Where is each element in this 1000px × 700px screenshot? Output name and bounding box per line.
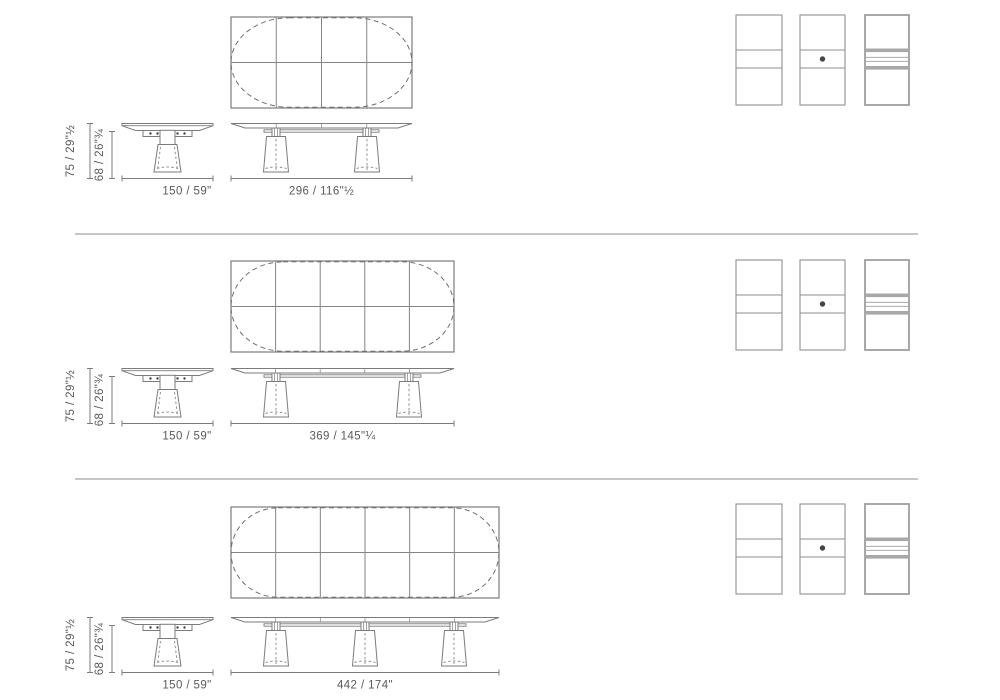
long-width-dimension: 296 / 116"½ <box>231 176 412 198</box>
screw-dot <box>176 626 178 628</box>
long-width-dimension: 369 / 145"¼ <box>231 421 454 443</box>
round-tabletop <box>122 618 213 625</box>
pedestal-neck <box>160 130 175 144</box>
total-height-label: 75 / 29"½ <box>65 125 77 177</box>
lock-dot-icon <box>820 56 825 61</box>
total-height-label: 75 / 29"½ <box>65 619 77 671</box>
long-width-dimension: 442 / 174" <box>231 670 499 692</box>
pedestal-neck <box>160 375 175 389</box>
swatch-top-plain <box>736 260 782 350</box>
dimension-diagram: 150 / 59"296 / 116"½75 / 29"½68 / 26"¾15… <box>0 0 1000 700</box>
screw-dot <box>176 132 178 134</box>
leaf-bar <box>866 555 908 559</box>
underframe-beam <box>264 130 379 132</box>
screw-dot <box>156 626 158 628</box>
long-tabletop <box>231 369 454 374</box>
top-mechanism-swatches <box>736 504 909 594</box>
leaf-bar <box>866 294 908 298</box>
screw-dot <box>176 377 178 379</box>
clearance-height-label: 68 / 26"¾ <box>94 623 106 675</box>
plan-view <box>231 17 412 108</box>
long-width-label: 296 / 116"½ <box>289 186 354 198</box>
leg-connector <box>405 373 413 382</box>
size-variant-table-442: 150 / 59"442 / 174"75 / 29"½68 / 26"¾ <box>65 504 909 692</box>
round-width-label: 150 / 59" <box>162 431 211 443</box>
swatch-top-plain <box>736 504 782 594</box>
total-height-label: 75 / 29"½ <box>65 370 77 422</box>
leaf-bar <box>866 311 908 315</box>
plan-view <box>231 507 499 598</box>
height-dimensions: 75 / 29"½68 / 26"¾ <box>65 124 115 182</box>
long-width-label: 442 / 174" <box>337 680 393 692</box>
top-mechanism-swatches <box>736 15 909 105</box>
round-table-side-view <box>122 369 213 418</box>
product-spec-sheet: 150 / 59"296 / 116"½75 / 29"½68 / 26"¾15… <box>0 0 1000 700</box>
swatch-top-extension-leaves <box>865 504 909 594</box>
leg-connector <box>272 128 280 137</box>
leg-connector <box>363 128 371 137</box>
leaf-bar <box>866 49 908 53</box>
size-variant-table-369: 150 / 59"369 / 145"¼75 / 29"½68 / 26"¾ <box>65 260 909 443</box>
pedestal-neck <box>160 624 175 638</box>
screw-dot <box>156 132 158 134</box>
swatch-top-dot <box>800 260 845 350</box>
round-table-side-view <box>122 124 213 173</box>
underframe-beam <box>264 375 421 377</box>
swatch-top-extension-leaves <box>865 15 909 105</box>
round-width-label: 150 / 59" <box>162 186 211 198</box>
round-tabletop <box>122 369 213 376</box>
long-table-side-view <box>231 618 499 667</box>
swatch-top-dot <box>800 504 845 594</box>
lock-dot-icon <box>820 301 825 306</box>
height-dimensions: 75 / 29"½68 / 26"¾ <box>65 618 115 676</box>
screw-dot <box>183 626 185 628</box>
size-variant-table-296: 150 / 59"296 / 116"½75 / 29"½68 / 26"¾ <box>65 15 909 198</box>
long-width-label: 369 / 145"¼ <box>309 431 375 443</box>
leg-connector <box>272 622 280 631</box>
round-width-dimension: 150 / 59" <box>122 176 213 198</box>
screw-dot <box>183 132 185 134</box>
swatch-top-plain <box>736 15 782 105</box>
leg-connector <box>272 373 280 382</box>
leg-connector <box>361 622 369 631</box>
lock-dot-icon <box>820 545 825 550</box>
long-table-side-view <box>231 369 454 418</box>
swatch-top-dot <box>800 15 845 105</box>
screw-dot <box>149 132 151 134</box>
round-width-dimension: 150 / 59" <box>122 670 213 692</box>
screw-dot <box>149 377 151 379</box>
screw-dot <box>156 377 158 379</box>
leg-connector <box>450 622 458 631</box>
screw-dot <box>183 377 185 379</box>
round-width-dimension: 150 / 59" <box>122 421 213 443</box>
round-tabletop <box>122 124 213 131</box>
leaf-bar <box>866 538 908 542</box>
swatch-top-extension-leaves <box>865 260 909 350</box>
screw-dot <box>149 626 151 628</box>
long-table-side-view <box>231 124 412 173</box>
round-table-side-view <box>122 618 213 667</box>
plan-view <box>231 261 454 352</box>
height-dimensions: 75 / 29"½68 / 26"¾ <box>65 369 115 427</box>
clearance-height-label: 68 / 26"¾ <box>94 374 106 426</box>
round-width-label: 150 / 59" <box>162 680 211 692</box>
clearance-height-label: 68 / 26"¾ <box>94 129 106 181</box>
leaf-bar <box>866 66 908 70</box>
top-mechanism-swatches <box>736 260 909 350</box>
